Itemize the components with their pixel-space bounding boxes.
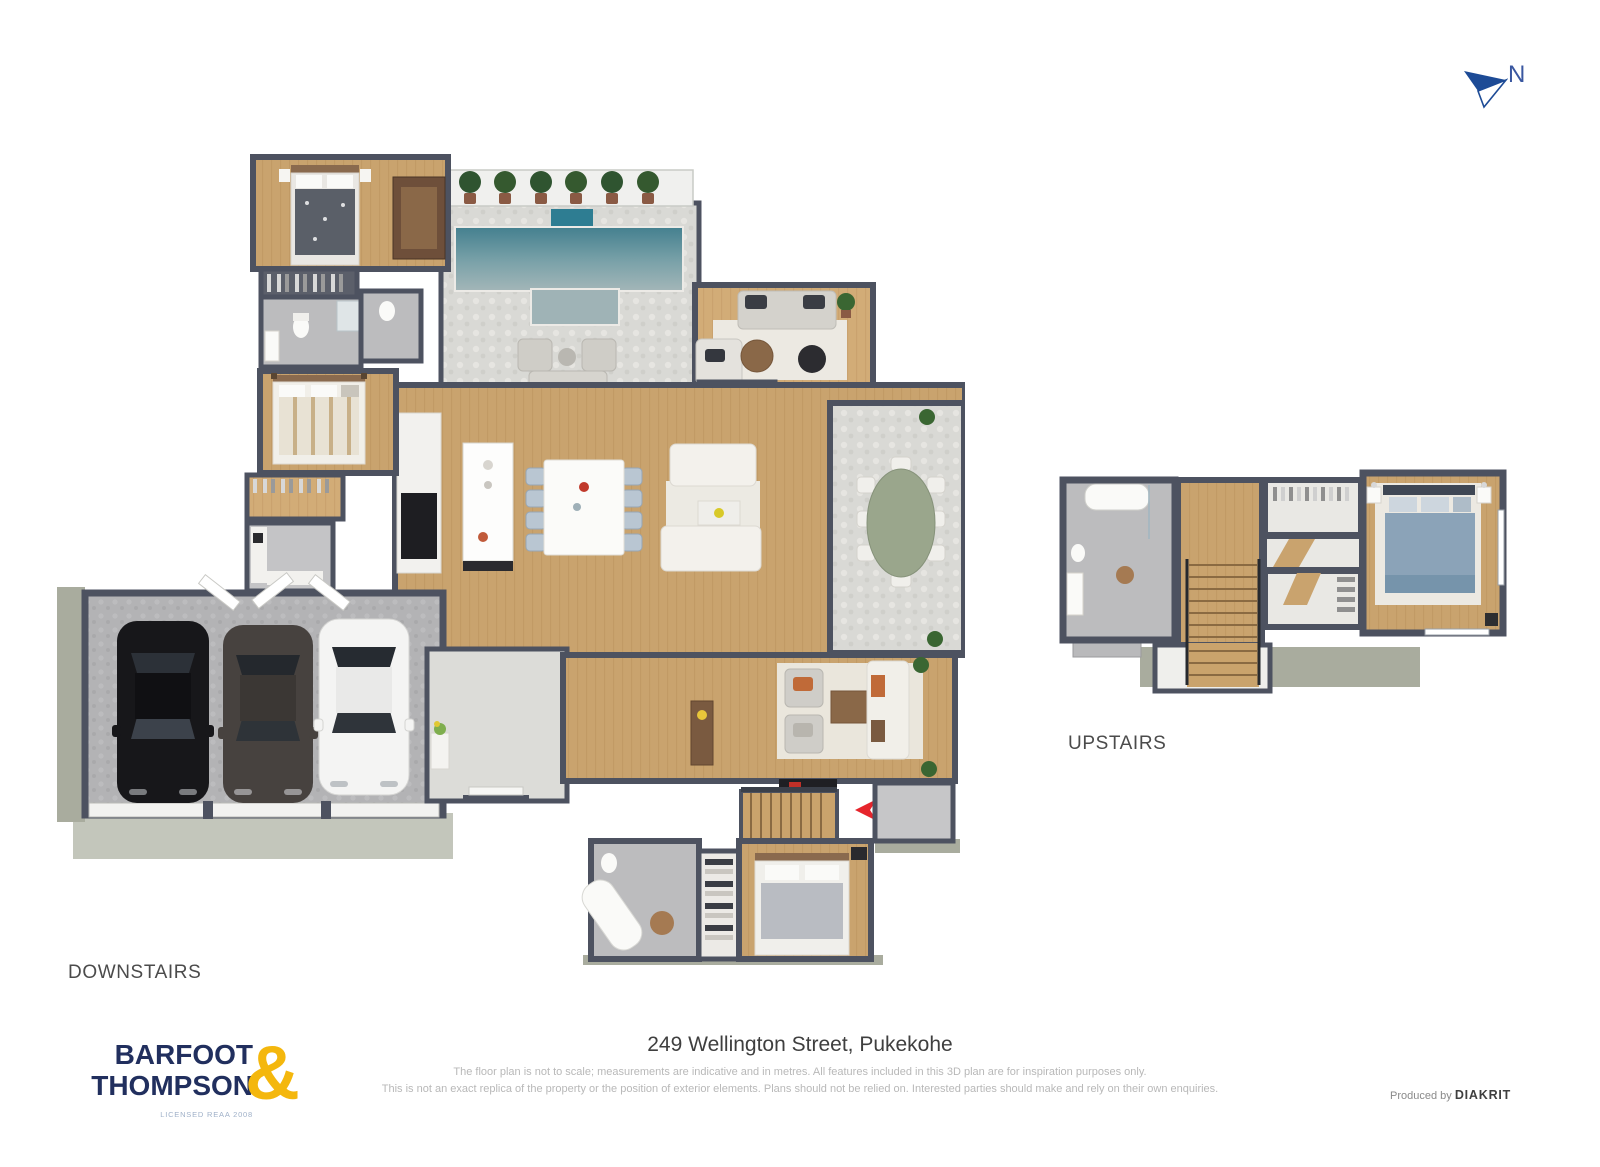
produced-by: Produced by DIAKRIT: [1390, 1088, 1511, 1102]
producer-name: DIAKRIT: [1455, 1088, 1511, 1102]
lounge-sofas: [661, 444, 761, 571]
upstairs-label: UPSTAIRS: [1068, 733, 1166, 755]
north-label: N: [1508, 61, 1525, 89]
car-grey: [218, 625, 318, 803]
produced-by-prefix: Produced by: [1390, 1090, 1455, 1102]
logo-license: LICENSED REAA 2008: [60, 1110, 253, 1119]
upstairs-bathroom: [1063, 480, 1175, 640]
north-arrow-icon: [1462, 55, 1508, 113]
floor-plan-page: N: [0, 0, 1600, 1167]
upstairs-bedroom: [1363, 473, 1504, 635]
open-plan-living: [395, 385, 965, 655]
disclaimer-line-1: The floor plan is not to scale; measurem…: [0, 1064, 1600, 1081]
garage: [85, 573, 443, 819]
rear-porch: [875, 783, 953, 841]
swimming-pool: [455, 227, 683, 291]
family-room: [563, 655, 955, 781]
guest-suite: [576, 841, 871, 959]
pool-area: [441, 170, 699, 399]
disclaimer-line-2: This is not an exact replica of the prop…: [0, 1081, 1600, 1098]
wc: [361, 291, 421, 361]
downstairs-floor-plan: [55, 135, 965, 965]
upstairs-floor-plan: [1045, 455, 1515, 715]
car-white: [314, 619, 414, 795]
property-address: 249 Wellington Street, Pukekohe: [0, 1033, 1600, 1057]
disclaimer: The floor plan is not to scale; measurem…: [0, 1064, 1600, 1097]
staircase: [741, 779, 877, 845]
walk-in-closets: [1265, 480, 1361, 627]
entry-foyer: [427, 649, 567, 802]
downstairs-label: DOWNSTAIRS: [68, 962, 201, 984]
north-indicator: N: [1462, 55, 1572, 115]
car-black: [112, 621, 214, 803]
